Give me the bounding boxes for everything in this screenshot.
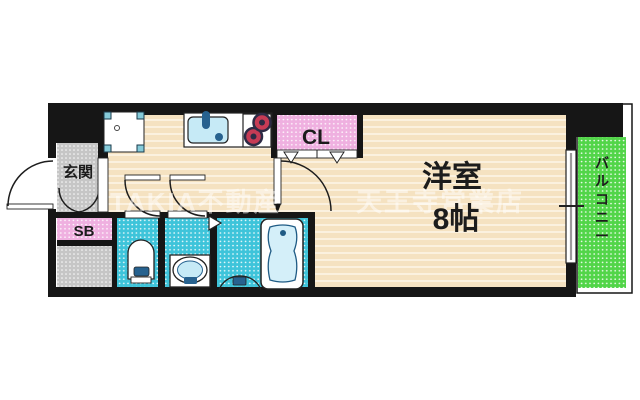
bath-handle xyxy=(233,277,246,285)
toilet-base xyxy=(131,277,151,283)
wall xyxy=(55,115,108,143)
bathtub-drain xyxy=(280,230,286,236)
main-room-label: 洋室 xyxy=(422,160,482,194)
refrigerator-corner-mark xyxy=(137,145,144,152)
washroom-door-leaf xyxy=(170,175,205,180)
wall xyxy=(48,115,56,158)
entrance-step xyxy=(98,158,108,212)
wall xyxy=(48,287,576,297)
sink-faucet xyxy=(202,111,210,129)
closet-label: CL xyxy=(302,126,330,149)
outlet-mark xyxy=(115,126,120,131)
wall xyxy=(158,218,165,287)
refrigerator-corner-mark xyxy=(104,145,111,152)
shoe-box-label: SB xyxy=(74,223,95,240)
wall xyxy=(566,263,576,297)
wall xyxy=(357,115,363,158)
main-room-size-label: 8帖 xyxy=(433,203,480,236)
entrance-door-leaf xyxy=(7,204,53,209)
stove-burner-center xyxy=(259,120,265,126)
entrance-label: 玄関 xyxy=(63,163,93,181)
wall xyxy=(48,209,56,297)
refrigerator-corner-mark xyxy=(137,112,144,119)
refrigerator-corner-mark xyxy=(104,112,111,119)
wall xyxy=(57,240,112,246)
sink-drain xyxy=(215,133,223,141)
toilet-seat xyxy=(134,267,149,276)
washbasin-bowl xyxy=(178,261,203,279)
watermark-brand: TAKIA不動産 xyxy=(110,187,282,217)
main-room-floor xyxy=(360,115,566,158)
wall xyxy=(566,115,576,150)
floorplan: TAKIA不動産 天王寺営業店 玄関 SB CL 洋室 8帖 バルコニー xyxy=(0,0,640,400)
washbasin-faucet xyxy=(184,277,197,284)
stove-burner-center xyxy=(251,134,257,140)
wall xyxy=(308,212,315,287)
pipe-shaft xyxy=(57,246,112,287)
balcony-label: バルコニー xyxy=(595,155,609,244)
toilet-door-leaf xyxy=(125,175,160,180)
floorplan-page: TAKIA不動産 天王寺営業店 玄関 SB CL 洋室 8帖 バルコニー xyxy=(0,0,640,400)
